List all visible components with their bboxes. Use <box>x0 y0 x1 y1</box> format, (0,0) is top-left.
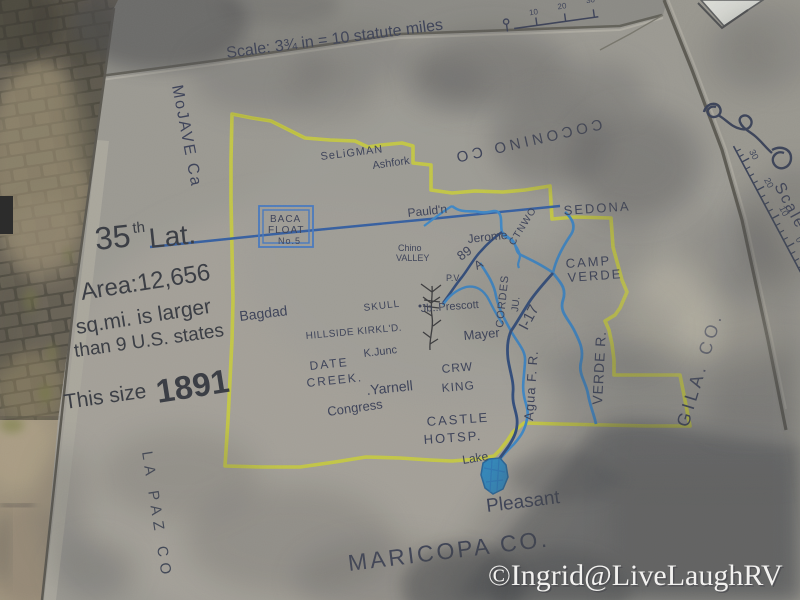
svg-text:©Ingrid@LiveLaughRV: ©Ingrid@LiveLaughRV <box>488 559 783 592</box>
